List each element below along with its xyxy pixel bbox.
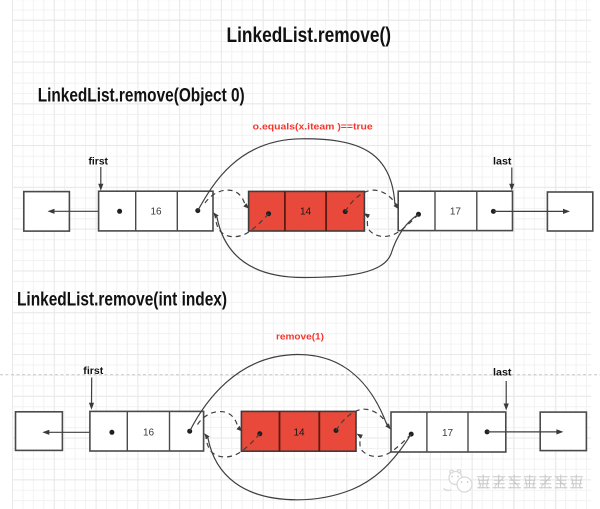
svg-text:LinkedList.remove(int index): LinkedList.remove(int index) — [17, 289, 227, 310]
svg-text:LinkedList.remove(): LinkedList.remove() — [227, 24, 392, 47]
svg-text:remove(1): remove(1) — [276, 331, 324, 342]
svg-text:17: 17 — [450, 206, 462, 217]
svg-text:o.equals(x.iteam )==true: o.equals(x.iteam )==true — [253, 122, 373, 133]
svg-text:17: 17 — [442, 428, 454, 439]
svg-text:first: first — [83, 366, 104, 377]
svg-text:last: last — [493, 157, 512, 168]
svg-text:16: 16 — [150, 206, 162, 217]
svg-text:last: last — [493, 367, 512, 378]
svg-text:LinkedList.remove(Object 0): LinkedList.remove(Object 0) — [38, 85, 245, 106]
svg-text:14: 14 — [300, 207, 312, 218]
svg-text:first: first — [89, 157, 109, 168]
svg-text:16: 16 — [143, 428, 155, 439]
svg-text:14: 14 — [293, 428, 305, 439]
